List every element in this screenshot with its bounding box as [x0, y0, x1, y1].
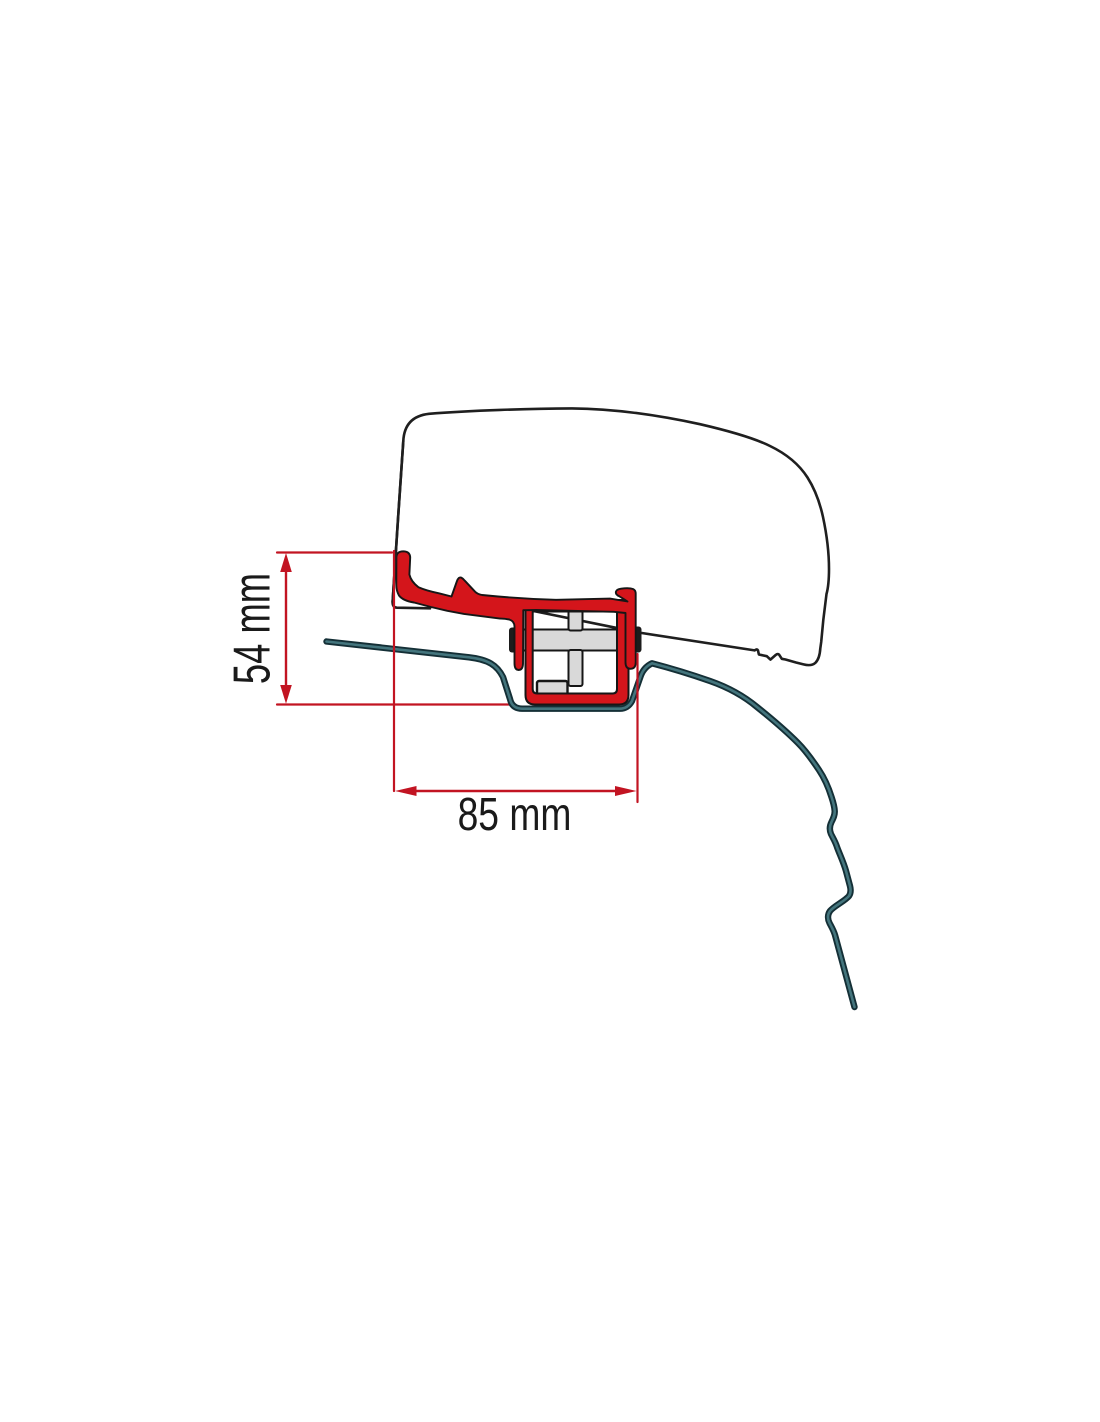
svg-text:85 mm: 85 mm — [458, 788, 572, 840]
svg-text:54 mm: 54 mm — [222, 573, 281, 684]
